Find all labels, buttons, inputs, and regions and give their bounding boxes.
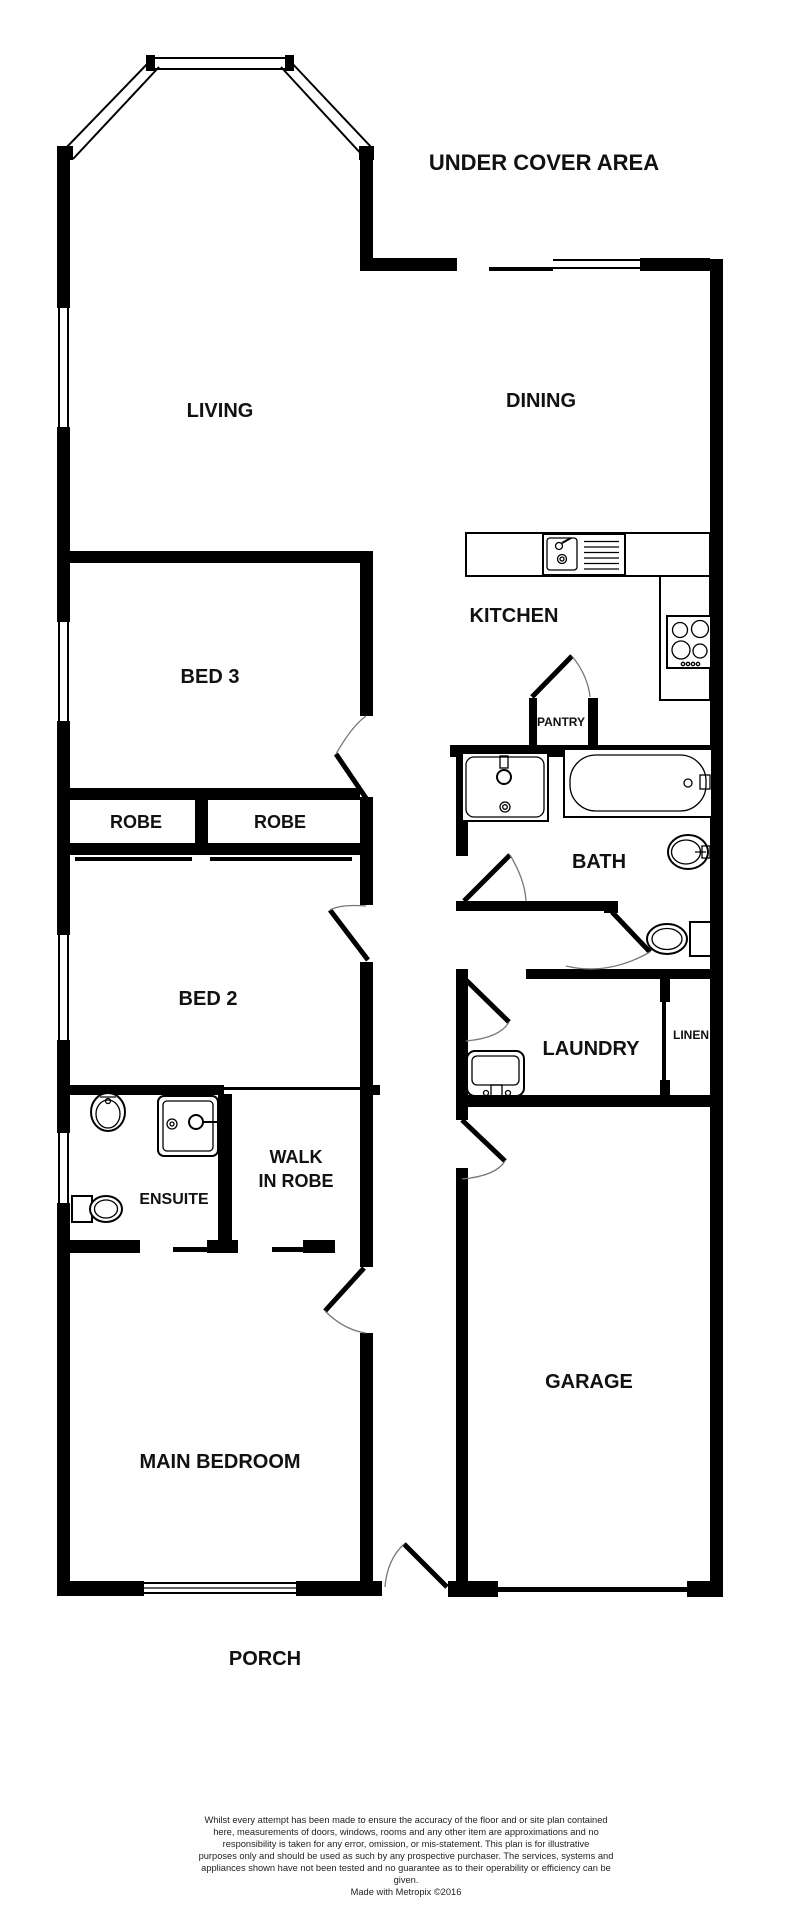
robe-slider-left [75,857,192,861]
disclaimer: Whilst every attempt has been made to en… [199,1815,614,1897]
label-robe-right: ROBE [254,812,306,832]
door-porch-arc [385,1544,404,1587]
door-bed3-arc [336,716,366,754]
label-walk-in-robe-1: WALK [270,1147,323,1167]
label-bath: BATH [572,851,626,873]
sill-wir-door [272,1247,303,1252]
door-wc-leaf [612,912,650,952]
disclaimer-line-1: Whilst every attempt has been made to en… [204,1815,607,1825]
wall-spine-robe [360,797,373,843]
wall-left-3 [57,721,70,935]
disclaimer-line-3: responsibility is taken for any error, o… [223,1839,590,1849]
door-garage [462,1120,505,1179]
stove [667,616,711,668]
robe-slider-right [210,857,352,861]
door-pantry-arc [572,656,590,697]
wall-bottom-2 [296,1581,382,1596]
door-pantry-leaf [532,656,572,697]
door-laundry-arc [466,1022,509,1041]
label-garage: GARAGE [545,1371,633,1393]
wall-living-bed3 [57,551,373,563]
wall-bed2-wir-thin [224,1087,360,1090]
door-bed2-arc [330,906,366,911]
wall-garage-left-2 [456,1168,468,1581]
wc-toilet-cistern [690,922,711,956]
wall-robe-top [57,788,360,800]
garage-door-line [498,1587,687,1592]
wall-mainbed-top-2 [207,1240,238,1253]
label-laundry: LAUNDRY [542,1038,640,1060]
bay-window-right-line1 [289,60,372,148]
wall-spine-mainbed [360,1333,373,1581]
wall-linen-thin [662,1002,666,1080]
label-walk-in-robe-2: IN ROBE [258,1171,333,1191]
door-wc-arc [566,952,650,969]
door-bed2-leaf [330,910,368,960]
bathtub-outline [564,749,712,817]
disclaimer-line-4: purposes only and should be used as such… [199,1851,614,1861]
wall-linen-stub-bottom [660,1080,670,1095]
label-under-cover-area: UNDER COVER AREA [429,150,659,175]
wall-bottom-1 [57,1581,144,1596]
label-bed3: BED 3 [181,666,240,688]
wc-toilet [647,922,711,956]
stove-outline [667,616,711,668]
wall-laundry-top [526,969,718,979]
bay-window-left-line1 [64,60,151,150]
floorplan-drawing: UNDER COVER AREA LIVING DINING BED 3 KIT… [0,0,800,1920]
wall-bed2-bottom [57,1085,224,1095]
bath-basin [668,835,710,869]
label-robe-left: ROBE [110,812,162,832]
door-main-bedroom-leaf [325,1268,364,1311]
shower [158,1096,218,1156]
wall-linen-stub-top [660,978,670,1002]
label-main-bedroom: MAIN BEDROOM [139,1451,300,1473]
bay-window [64,55,372,159]
ensuite-toilet [72,1196,122,1222]
sill-dining-opening [489,267,553,271]
door-garage-leaf [462,1120,505,1161]
door-bath-arc [510,855,526,901]
label-pantry: PANTRY [537,715,585,729]
wall-garage-left-1 [456,1107,468,1120]
door-porch [385,1544,447,1587]
floorplan-page: UNDER COVER AREA LIVING DINING BED 3 KIT… [0,0,800,1920]
door-bed2 [330,906,368,961]
label-porch: PORCH [229,1648,301,1670]
wall-left-1 [57,147,70,308]
bathtub [564,749,712,817]
bath-vanity [462,753,548,821]
disclaimer-credit: Made with Metropix ©2016 [351,1887,462,1897]
wall-left-2 [57,427,70,622]
wall-bottom-3 [448,1581,498,1597]
door-main-bedroom-arc [325,1311,366,1333]
vanity-faucet [497,770,511,784]
vanity-outline [462,753,548,821]
label-linen: LINEN [673,1028,709,1042]
laundry-trough-outline [467,1051,524,1096]
windows [56,258,640,1597]
wall-dining-top-left [360,258,457,271]
wall-mainbed-top-3 [303,1240,335,1253]
wall-mainbed-top-1 [57,1240,140,1253]
label-ensuite: ENSUITE [139,1191,209,1208]
door-wc [566,912,650,969]
label-kitchen: KITCHEN [470,605,559,627]
wall-pantry-left [529,698,537,745]
wall-bath-bottom [456,901,604,911]
label-living: LIVING [187,400,254,422]
door-pantry [532,656,590,697]
door-laundry-leaf [466,980,509,1022]
wall-spine-top [360,150,373,270]
sill-ensuite-door [173,1247,207,1252]
kitchen-sink [543,534,625,575]
ensuite-basin [91,1093,125,1131]
label-dining: DINING [506,390,576,412]
wall-dining-top-right [640,258,710,271]
bay-window-right-line2 [281,67,364,157]
door-bath [464,855,526,901]
wall-spine-bed2 [360,962,373,1085]
door-main-bedroom [325,1268,366,1333]
door-porch-leaf [404,1544,447,1587]
door-laundry [466,980,509,1041]
door-garage-arc [462,1161,505,1179]
wall-robe-bottom [57,843,373,855]
wall-left-5 [57,1203,70,1596]
disclaimer-line-6: given. [394,1875,419,1885]
wall-spine-wir [360,1094,373,1267]
bay-window-left-line2 [73,67,159,159]
laundry-fixtures [467,1051,524,1096]
wall-ensuite-wir [218,1094,232,1244]
wall-wc-stub [604,901,618,913]
disclaimer-line-5: appliances shown have not been tested an… [201,1863,611,1873]
wall-spine-bed2-top [360,855,373,905]
wall-pantry-right [588,698,598,745]
label-bed2: BED 2 [179,988,238,1010]
wall-spine-stub [360,1085,380,1095]
disclaimer-line-2: here, measurements of doors, windows, ro… [213,1827,599,1837]
shower-head [189,1115,203,1129]
door-bath-leaf [464,855,510,901]
room-labels: UNDER COVER AREA LIVING DINING BED 3 KIT… [110,150,709,1670]
wall-spine-bed3 [360,551,373,716]
